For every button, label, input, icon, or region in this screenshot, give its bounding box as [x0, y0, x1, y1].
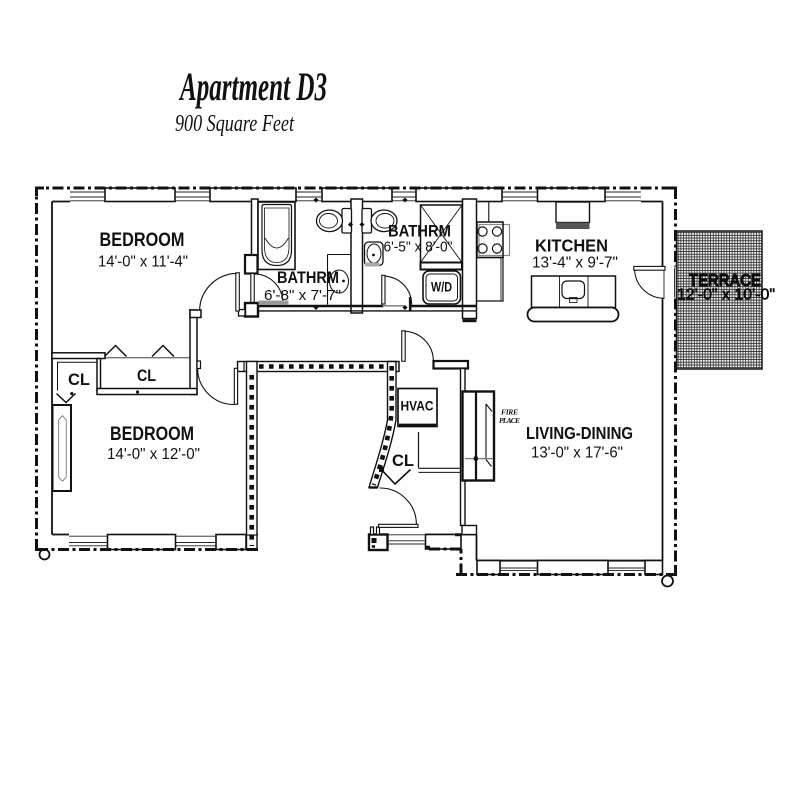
svg-text:6'-8" x 7'-7": 6'-8" x 7'-7": [264, 287, 341, 304]
svg-text:LIVING-DINING: LIVING-DINING: [526, 423, 633, 443]
svg-text:W/D: W/D: [431, 279, 452, 295]
svg-text:BATHRM: BATHRM: [277, 269, 339, 287]
svg-text:14'-0" x 11'-4": 14'-0" x 11'-4": [98, 254, 188, 271]
svg-text:CL: CL: [68, 370, 90, 389]
svg-text:12'-0" x 10'-0": 12'-0" x 10'-0": [677, 287, 775, 304]
svg-text:BEDROOM: BEDROOM: [100, 230, 185, 251]
svg-text:CL: CL: [137, 366, 156, 385]
svg-text:CL: CL: [392, 451, 414, 470]
svg-text:Apartment D3: Apartment D3: [178, 64, 327, 109]
svg-text:BEDROOM: BEDROOM: [110, 424, 194, 445]
svg-text:6'-5" x 8'-0": 6'-5" x 8'-0": [384, 239, 453, 256]
svg-text:HVAC: HVAC: [401, 399, 434, 414]
svg-text:13'-0" x 17'-6": 13'-0" x 17'-6": [531, 445, 623, 462]
svg-text:900 Square Feet: 900 Square Feet: [175, 111, 295, 137]
svg-text:PLACE: PLACE: [499, 416, 520, 425]
svg-text:KITCHEN: KITCHEN: [535, 236, 608, 256]
svg-text:14'-0" x 12'-0": 14'-0" x 12'-0": [107, 446, 200, 463]
svg-text:13'-4" x 9'-7": 13'-4" x 9'-7": [532, 255, 618, 272]
